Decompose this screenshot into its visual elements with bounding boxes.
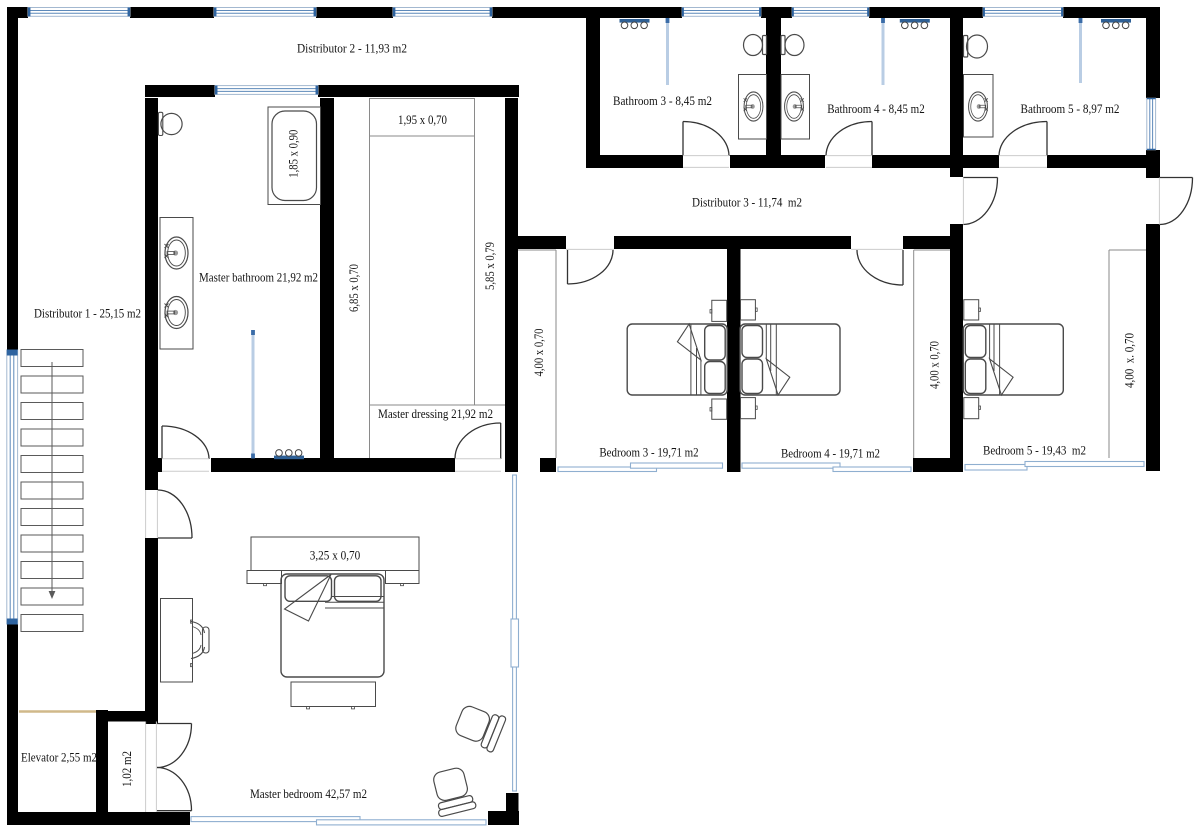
svg-text:1,02 m2: 1,02 m2: [120, 751, 134, 787]
svg-text:4,00 x 0,70: 4,00 x 0,70: [532, 329, 546, 377]
svg-text:4,00 x 0,70: 4,00 x 0,70: [928, 341, 942, 389]
svg-text:Bathroom 5 - 8,97 m2: Bathroom 5 - 8,97 m2: [1021, 102, 1120, 116]
svg-text:4,00 x. 0,70: 4,00 x. 0,70: [1123, 333, 1137, 388]
svg-text:3,25 x 0,70: 3,25 x 0,70: [310, 549, 361, 563]
svg-text:Distributor 1 - 25,15 m2: Distributor 1 - 25,15 m2: [34, 307, 141, 321]
svg-text:Master bedroom 42,57 m2: Master bedroom 42,57 m2: [250, 787, 367, 801]
svg-text:Distributor 2 - 11,93 m2: Distributor 2 - 11,93 m2: [297, 42, 407, 56]
svg-text:Bedroom 4 - 19,71 m2: Bedroom 4 - 19,71 m2: [781, 447, 880, 461]
svg-text:Bedroom 5 - 19,43 m2: Bedroom 5 - 19,43 m2: [983, 444, 1086, 458]
svg-text:Bathroom 4 - 8,45 m2: Bathroom 4 - 8,45 m2: [827, 102, 925, 116]
svg-text:6,85 x 0,70: 6,85 x 0,70: [347, 264, 361, 312]
svg-text:5,85 x 0,79: 5,85 x 0,79: [483, 242, 497, 290]
svg-text:1,85 x 0,90: 1,85 x 0,90: [287, 130, 301, 178]
svg-text:Elevator 2,55 m2: Elevator 2,55 m2: [21, 751, 97, 765]
svg-text:1,95 x 0,70: 1,95 x 0,70: [398, 113, 447, 127]
svg-text:Master dressing 21,92 m2: Master dressing 21,92 m2: [378, 407, 493, 421]
svg-text:Master bathroom 21,92 m2: Master bathroom 21,92 m2: [199, 271, 318, 285]
svg-text:Bathroom 3 - 8,45 m2: Bathroom 3 - 8,45 m2: [613, 94, 712, 108]
svg-text:Bedroom 3 - 19,71 m2: Bedroom 3 - 19,71 m2: [599, 445, 698, 459]
svg-text:Distributor 3 - 11,74 m2: Distributor 3 - 11,74 m2: [692, 196, 802, 210]
